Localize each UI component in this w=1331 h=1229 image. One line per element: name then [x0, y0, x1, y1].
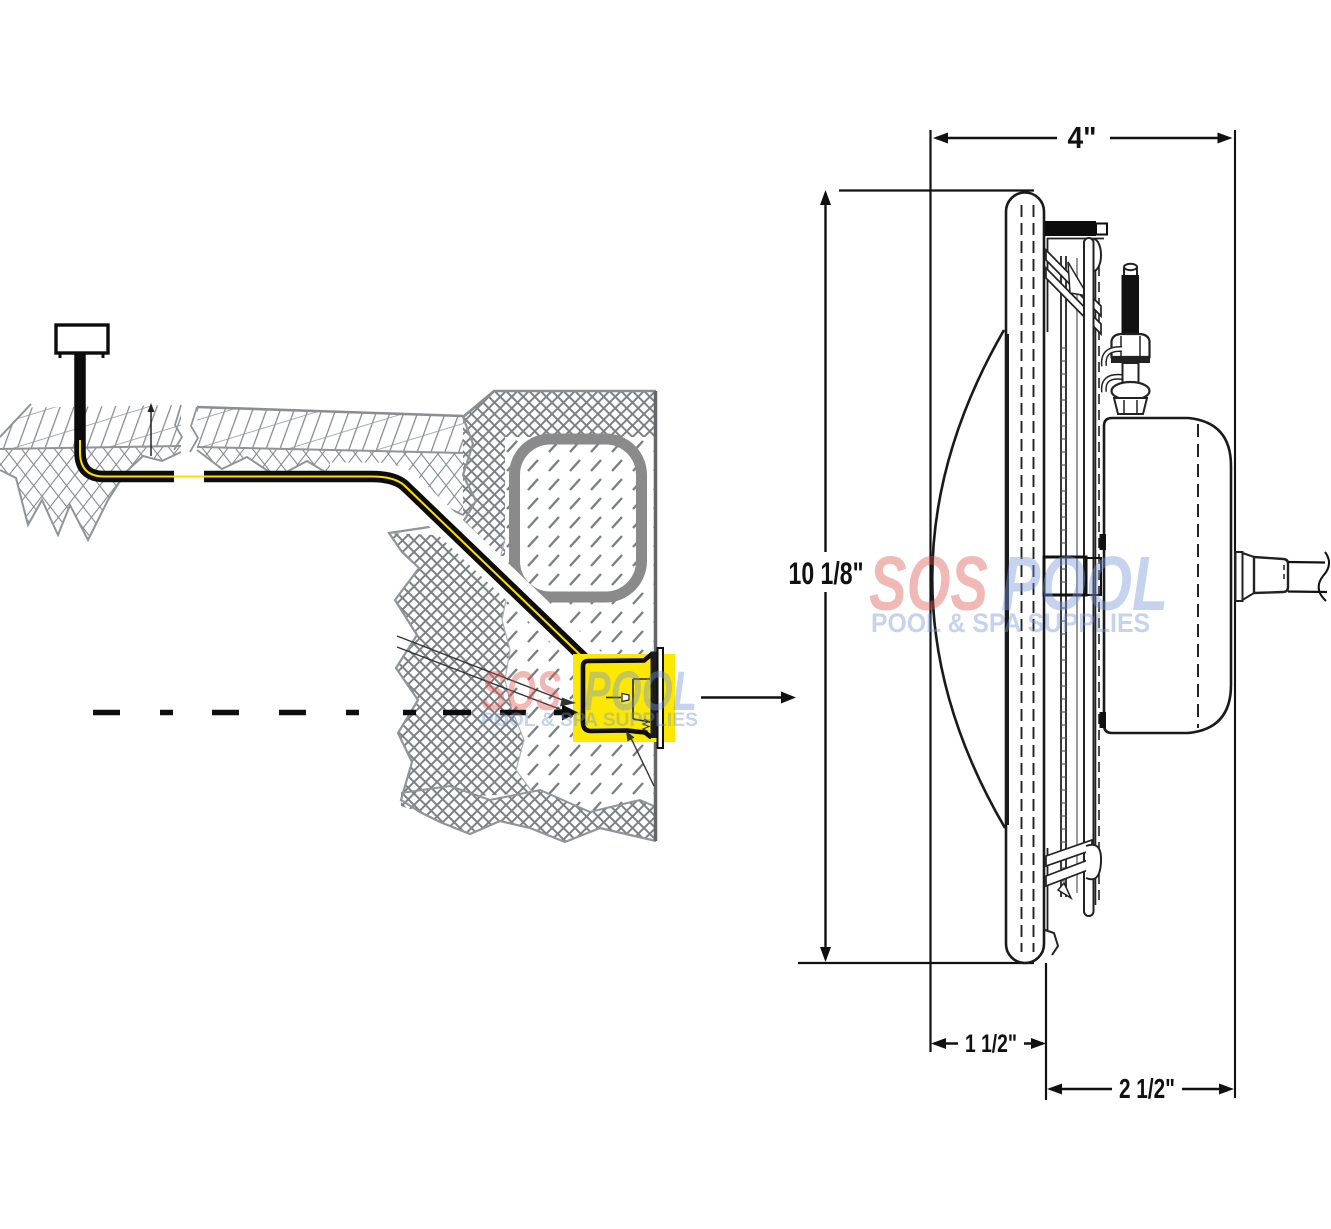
svg-text:10 1/8": 10 1/8": [789, 555, 864, 591]
svg-text:POOL & SPA SUPPLIES: POOL & SPA SUPPLIES: [481, 710, 698, 731]
svg-text:1 1/2": 1 1/2": [965, 1030, 1017, 1058]
svg-text:4": 4": [1068, 120, 1097, 155]
svg-text:POOL & SPA SUPPLIES: POOL & SPA SUPPLIES: [871, 608, 1150, 638]
svg-text:2 1/2": 2 1/2": [1119, 1073, 1175, 1104]
